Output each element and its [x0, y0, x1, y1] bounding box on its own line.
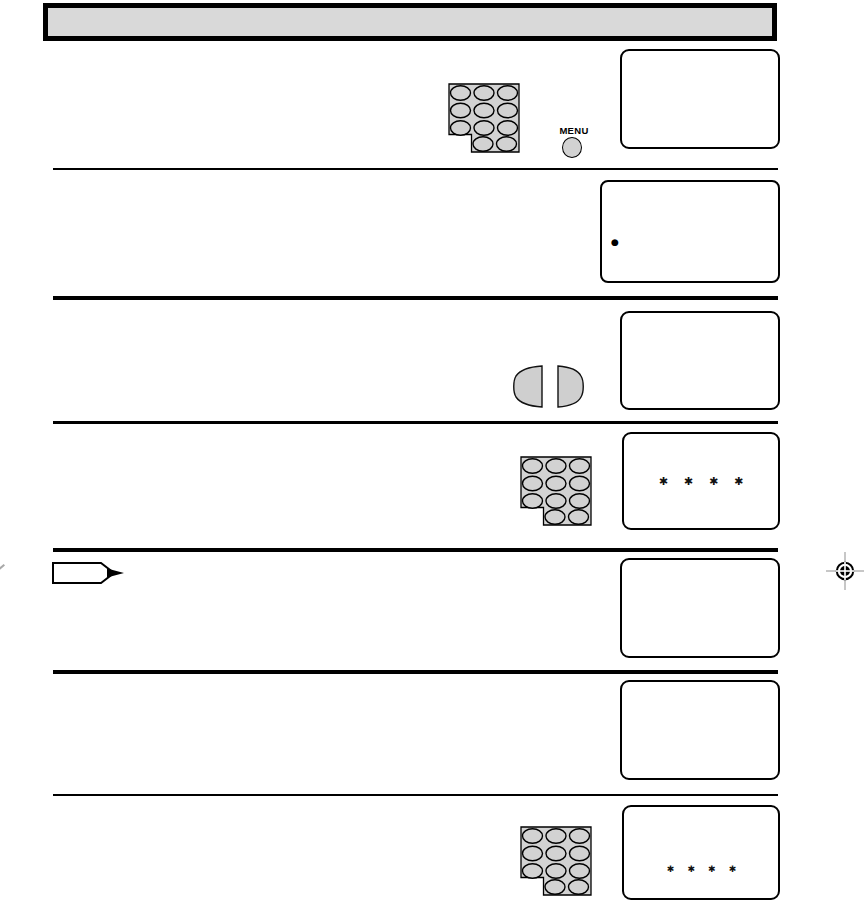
- tv-screen-5: [620, 558, 780, 658]
- section-divider: [53, 421, 778, 424]
- tv-screen-4: ✱ ✱ ✱ ✱: [622, 432, 780, 530]
- menu-button-icon: [562, 137, 582, 158]
- tv-screen-3: [620, 311, 780, 410]
- section-divider: [53, 670, 778, 674]
- password-asterisks: ✱ ✱ ✱ ✱: [661, 865, 742, 874]
- keypad-icon: [520, 456, 592, 526]
- crop-mark-tick: [0, 564, 5, 570]
- tv-screen-7: ✱ ✱ ✱ ✱: [622, 805, 780, 900]
- keypad-icon: [520, 826, 592, 896]
- right-arrow-button-icon: [557, 365, 585, 408]
- procedure-arrow-icon: [52, 561, 126, 585]
- tv-screen-1: [620, 49, 780, 149]
- bullet-dot-icon: ●: [611, 238, 619, 247]
- tv-screen-2: ●: [600, 180, 780, 283]
- manual-page: MENU ● ✱ ✱ ✱ ✱: [0, 0, 866, 904]
- registration-mark-icon: [826, 552, 864, 590]
- password-asterisks: ✱ ✱ ✱ ✱: [653, 476, 749, 487]
- tv-screen-6: [620, 680, 780, 780]
- section-divider: [53, 548, 778, 552]
- section-divider: [53, 794, 778, 796]
- title-bar: [43, 3, 777, 41]
- keypad-icon: [448, 83, 520, 153]
- section-divider: [53, 296, 778, 300]
- section-divider: [53, 168, 778, 170]
- menu-button-label: MENU: [552, 125, 596, 136]
- left-arrow-button-icon: [512, 365, 543, 408]
